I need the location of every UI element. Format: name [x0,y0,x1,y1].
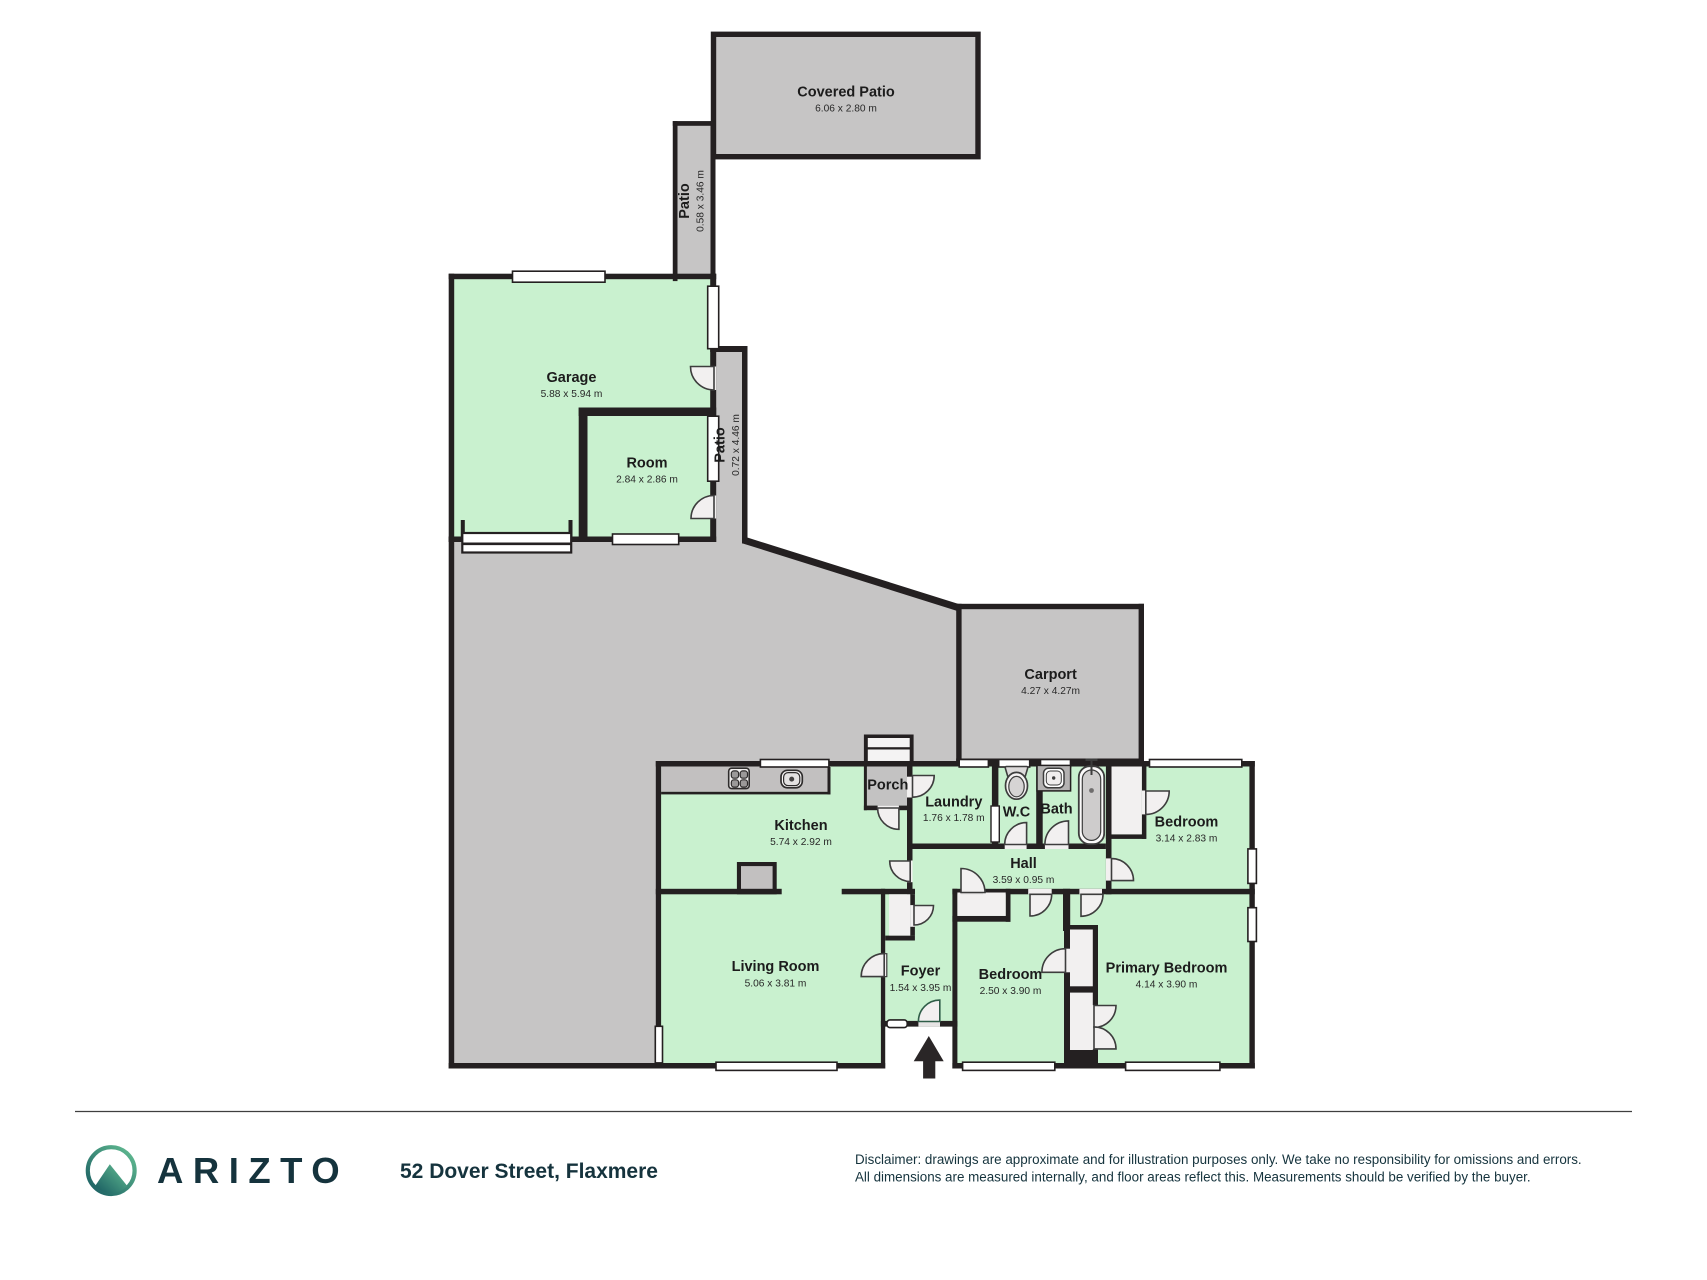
svg-text:Kitchen: Kitchen [774,818,827,834]
svg-text:ARIZTO: ARIZTO [157,1150,349,1191]
svg-text:Bedroom: Bedroom [979,967,1043,983]
svg-text:Bedroom: Bedroom [1155,815,1219,831]
svg-text:Foyer: Foyer [901,964,941,980]
svg-text:4.14 x 3.90 m: 4.14 x 3.90 m [1136,980,1198,991]
svg-text:Garage: Garage [547,370,597,386]
svg-text:5.74 x 2.92 m: 5.74 x 2.92 m [770,837,832,848]
svg-text:3.59 x 0.95 m: 3.59 x 0.95 m [993,875,1055,886]
svg-text:Bath: Bath [1040,802,1072,818]
svg-text:52 Dover Street, Flaxmere: 52 Dover Street, Flaxmere [400,1160,658,1183]
svg-text:5.06 x 3.81 m: 5.06 x 3.81 m [745,979,807,990]
svg-text:0.72 x 4.46 m: 0.72 x 4.46 m [731,414,742,476]
svg-text:Disclaimer: drawings are appro: Disclaimer: drawings are approximate and… [855,1152,1582,1167]
svg-text:Carport: Carport [1024,667,1077,683]
svg-text:Patio: Patio [677,183,693,219]
svg-text:1.54 x 3.95 m: 1.54 x 3.95 m [890,983,952,994]
svg-text:All dimensions are measured in: All dimensions are measured internally, … [855,1170,1531,1185]
svg-text:W.C: W.C [1003,805,1031,821]
svg-text:0.58 x 3.46 m: 0.58 x 3.46 m [696,170,707,232]
svg-text:2.84 x 2.86 m: 2.84 x 2.86 m [616,475,678,486]
svg-text:1.76 x 1.78 m: 1.76 x 1.78 m [923,813,985,824]
svg-text:Hall: Hall [1010,856,1037,872]
svg-text:Living Room: Living Room [732,959,820,975]
svg-text:Laundry: Laundry [925,795,982,811]
svg-text:2.50 x 3.90 m: 2.50 x 3.90 m [980,986,1042,997]
svg-text:Patio: Patio [713,427,729,463]
svg-text:Primary Bedroom: Primary Bedroom [1106,961,1228,977]
svg-text:Covered Patio: Covered Patio [797,85,895,101]
svg-text:Room: Room [626,456,667,472]
svg-text:3.14 x 2.83 m: 3.14 x 2.83 m [1156,834,1218,845]
svg-text:5.88 x 5.94 m: 5.88 x 5.94 m [541,389,603,400]
svg-text:6.06 x 2.80 m: 6.06 x 2.80 m [815,104,877,115]
svg-text:Porch: Porch [867,777,908,793]
svg-text:4.27 x 4.27m: 4.27 x 4.27m [1021,686,1080,697]
